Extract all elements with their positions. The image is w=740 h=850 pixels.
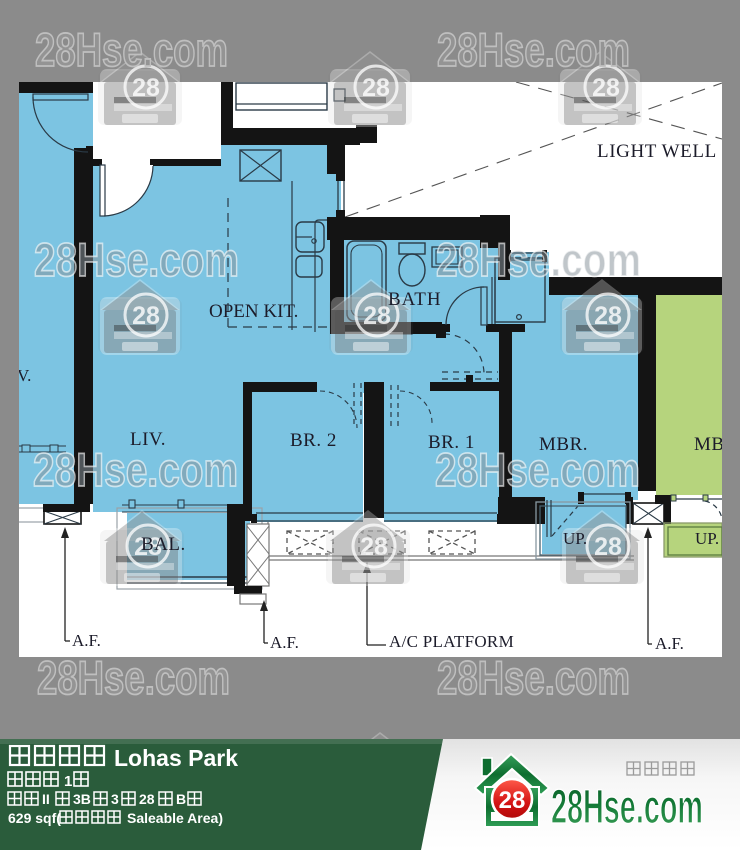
svg-text:UP.: UP. [563,529,587,548]
svg-text:3: 3 [111,791,119,807]
svg-text:28: 28 [592,74,620,102]
svg-text:BAL.: BAL. [141,534,186,555]
svg-text:BR. 1: BR. 1 [428,432,475,453]
svg-text:28Hse.com: 28Hse.com [34,233,239,286]
svg-text:629 sqf(: 629 sqf( [8,810,61,826]
svg-text:LIV.: LIV. [130,429,166,450]
svg-text:28: 28 [499,787,526,814]
svg-text:BATH: BATH [388,289,442,310]
svg-text:28Hse.com: 28Hse.com [551,781,703,834]
svg-text:28: 28 [360,533,388,561]
svg-text:LIGHT WELL: LIGHT WELL [597,141,717,162]
svg-text:28: 28 [363,302,391,330]
svg-text:Lohas Park: Lohas Park [114,745,238,771]
svg-text:V.: V. [17,366,31,385]
svg-text:28: 28 [594,302,622,330]
svg-text:A/C PLATFORM: A/C PLATFORM [389,632,514,651]
svg-text:3B: 3B [73,791,91,807]
svg-text:28Hse.com: 28Hse.com [436,233,641,286]
svg-text:B: B [176,791,186,807]
svg-text:28: 28 [594,533,622,561]
svg-text:28: 28 [132,74,160,102]
svg-text:28Hse.com: 28Hse.com [437,651,630,704]
svg-text:28Hse.com: 28Hse.com [33,443,238,496]
svg-text:28: 28 [132,302,160,330]
svg-text:A.F.: A.F. [655,634,684,653]
svg-text:Saleable Area): Saleable Area) [127,810,223,826]
svg-text:28Hse.com: 28Hse.com [35,23,228,76]
svg-text:28: 28 [139,791,155,807]
svg-text:1: 1 [64,773,72,790]
svg-text:BR. 2: BR. 2 [290,430,337,451]
svg-text:II: II [42,791,50,807]
svg-text:MBR.: MBR. [539,434,588,455]
svg-text:A.F.: A.F. [270,633,299,652]
svg-text:28Hse.com: 28Hse.com [437,23,630,76]
svg-text:28Hse.com: 28Hse.com [37,651,230,704]
svg-text:OPEN KIT.: OPEN KIT. [209,301,298,322]
svg-text:28: 28 [362,74,390,102]
svg-text:UP.: UP. [695,529,719,548]
svg-text:A.F.: A.F. [72,631,101,650]
